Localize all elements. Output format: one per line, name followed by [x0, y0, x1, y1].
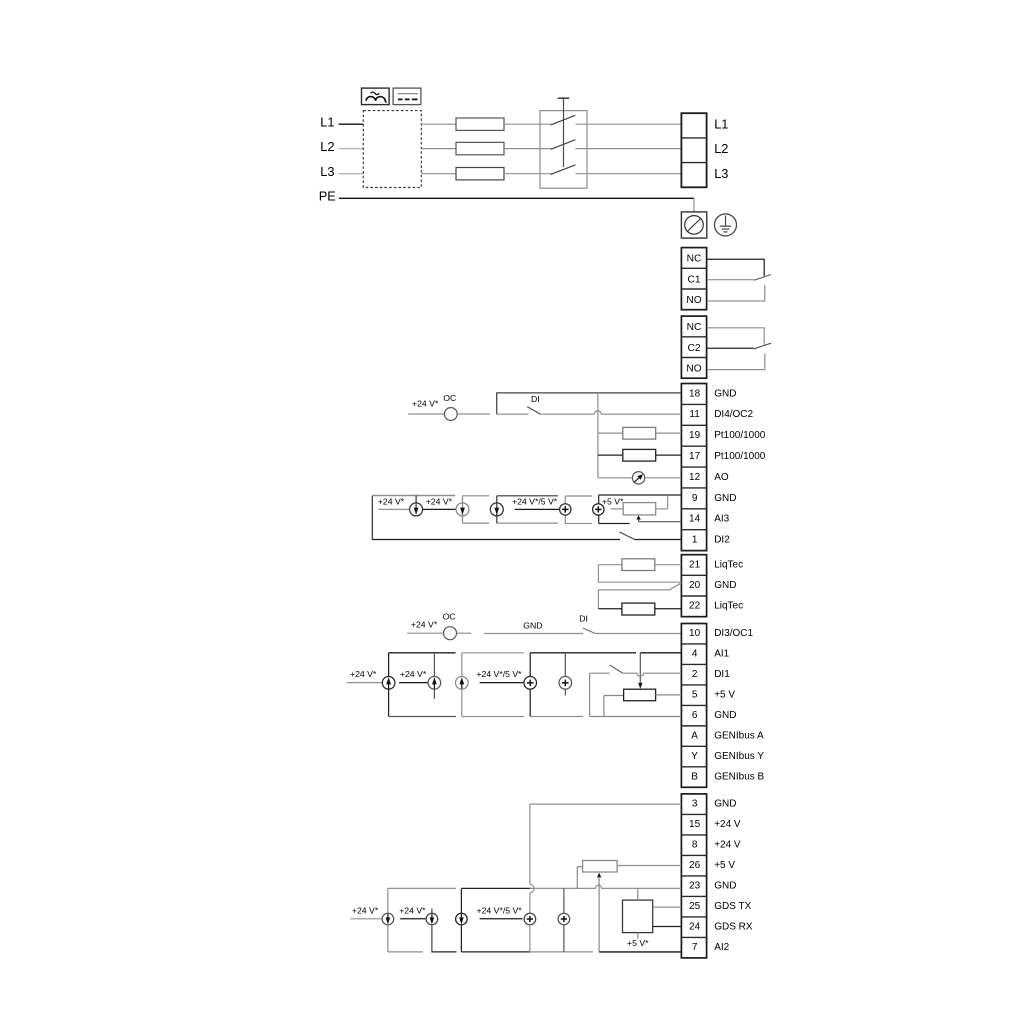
- svg-text:NC: NC: [687, 322, 702, 333]
- svg-text:20: 20: [689, 580, 701, 591]
- svg-text:GND: GND: [714, 493, 736, 504]
- svg-text:+24 V: +24 V: [714, 819, 741, 830]
- svg-text:DI1: DI1: [714, 669, 730, 680]
- svg-text:15: 15: [689, 819, 701, 830]
- svg-text:L1: L1: [714, 117, 728, 132]
- svg-text:+24 V*/5 V*: +24 V*/5 V*: [512, 496, 558, 506]
- svg-text:+5 V*: +5 V*: [602, 497, 624, 507]
- svg-text:5: 5: [692, 690, 698, 701]
- svg-text:AO: AO: [714, 472, 729, 483]
- svg-text:GND: GND: [714, 881, 736, 892]
- svg-text:C1: C1: [687, 274, 700, 285]
- svg-text:GDS RX: GDS RX: [714, 922, 753, 933]
- svg-text:DI2: DI2: [714, 535, 730, 546]
- svg-text:26: 26: [689, 860, 701, 871]
- svg-text:GND: GND: [714, 710, 736, 721]
- svg-text:+5 V: +5 V: [714, 690, 735, 701]
- svg-text:PE: PE: [319, 189, 336, 204]
- svg-text:+24 V*/5 V*: +24 V*/5 V*: [476, 669, 522, 679]
- svg-text:21: 21: [689, 559, 701, 570]
- svg-text:L2: L2: [320, 139, 334, 154]
- svg-text:+24 V: +24 V: [714, 840, 741, 851]
- svg-text:Pt100/1000: Pt100/1000: [714, 430, 766, 441]
- svg-text:GND: GND: [523, 621, 542, 631]
- svg-text:DI3/OC1: DI3/OC1: [714, 628, 753, 639]
- svg-text:NC: NC: [687, 254, 702, 265]
- svg-text:L3: L3: [320, 164, 334, 179]
- svg-text:+24 V*: +24 V*: [411, 620, 438, 630]
- svg-text:11: 11: [689, 409, 700, 420]
- svg-text:GENIbus Y: GENIbus Y: [714, 751, 764, 762]
- svg-text:C2: C2: [687, 343, 700, 354]
- svg-text:A: A: [691, 731, 698, 742]
- svg-text:9: 9: [692, 493, 698, 504]
- svg-text:GND: GND: [714, 799, 736, 810]
- svg-text:+24 V*: +24 V*: [400, 669, 427, 679]
- svg-text:Pt100/1000: Pt100/1000: [714, 451, 766, 462]
- svg-text:+24 V*: +24 V*: [350, 669, 377, 679]
- svg-text:DI: DI: [579, 614, 588, 624]
- svg-text:LiqTec: LiqTec: [714, 559, 743, 570]
- svg-text:10: 10: [689, 628, 701, 639]
- svg-text:18: 18: [689, 388, 701, 399]
- svg-text:GND: GND: [714, 388, 736, 399]
- svg-text:GENIbus A: GENIbus A: [714, 731, 764, 742]
- svg-text:25: 25: [689, 901, 701, 912]
- svg-text:OC: OC: [443, 393, 456, 403]
- svg-text:+5 V: +5 V: [714, 860, 735, 871]
- svg-text:23: 23: [689, 881, 701, 892]
- svg-text:AI2: AI2: [714, 942, 729, 953]
- svg-text:OC: OC: [443, 611, 456, 621]
- svg-text:24: 24: [689, 922, 701, 933]
- svg-text:1: 1: [692, 535, 698, 546]
- svg-text:22: 22: [689, 601, 701, 612]
- svg-text:Y: Y: [691, 751, 698, 762]
- svg-text:+24 V*: +24 V*: [399, 905, 426, 915]
- svg-text:L1: L1: [320, 114, 334, 129]
- svg-text:17: 17: [689, 451, 701, 462]
- svg-text:12: 12: [689, 472, 701, 483]
- svg-text:+24 V*: +24 V*: [412, 399, 439, 409]
- svg-text:+24 V*: +24 V*: [426, 496, 453, 506]
- svg-text:AI3: AI3: [714, 514, 729, 525]
- svg-text:+24 V*/5 V*: +24 V*/5 V*: [477, 905, 523, 915]
- svg-text:DI: DI: [531, 394, 540, 404]
- svg-text:+24 V*: +24 V*: [378, 496, 405, 506]
- svg-text:19: 19: [689, 430, 701, 441]
- svg-text:B: B: [691, 771, 698, 782]
- svg-text:L3: L3: [714, 166, 728, 181]
- svg-text:GENIbus B: GENIbus B: [714, 771, 764, 782]
- svg-text:DI4/OC2: DI4/OC2: [714, 409, 753, 420]
- svg-text:2: 2: [692, 669, 698, 680]
- svg-text:4: 4: [692, 649, 698, 660]
- svg-text:+24 V*: +24 V*: [352, 905, 379, 915]
- svg-text:NO: NO: [686, 295, 701, 306]
- svg-text:6: 6: [692, 710, 698, 721]
- svg-text:AI1: AI1: [714, 649, 729, 660]
- svg-text:14: 14: [689, 514, 701, 525]
- svg-text:L2: L2: [714, 141, 728, 156]
- svg-text:3: 3: [692, 799, 698, 810]
- svg-text:GDS TX: GDS TX: [714, 901, 751, 912]
- svg-text:8: 8: [692, 840, 698, 851]
- svg-text:NO: NO: [686, 364, 701, 375]
- svg-text:7: 7: [692, 942, 698, 953]
- svg-text:GND: GND: [714, 580, 736, 591]
- svg-text:+5 V*: +5 V*: [627, 938, 649, 948]
- svg-text:LiqTec: LiqTec: [714, 601, 743, 612]
